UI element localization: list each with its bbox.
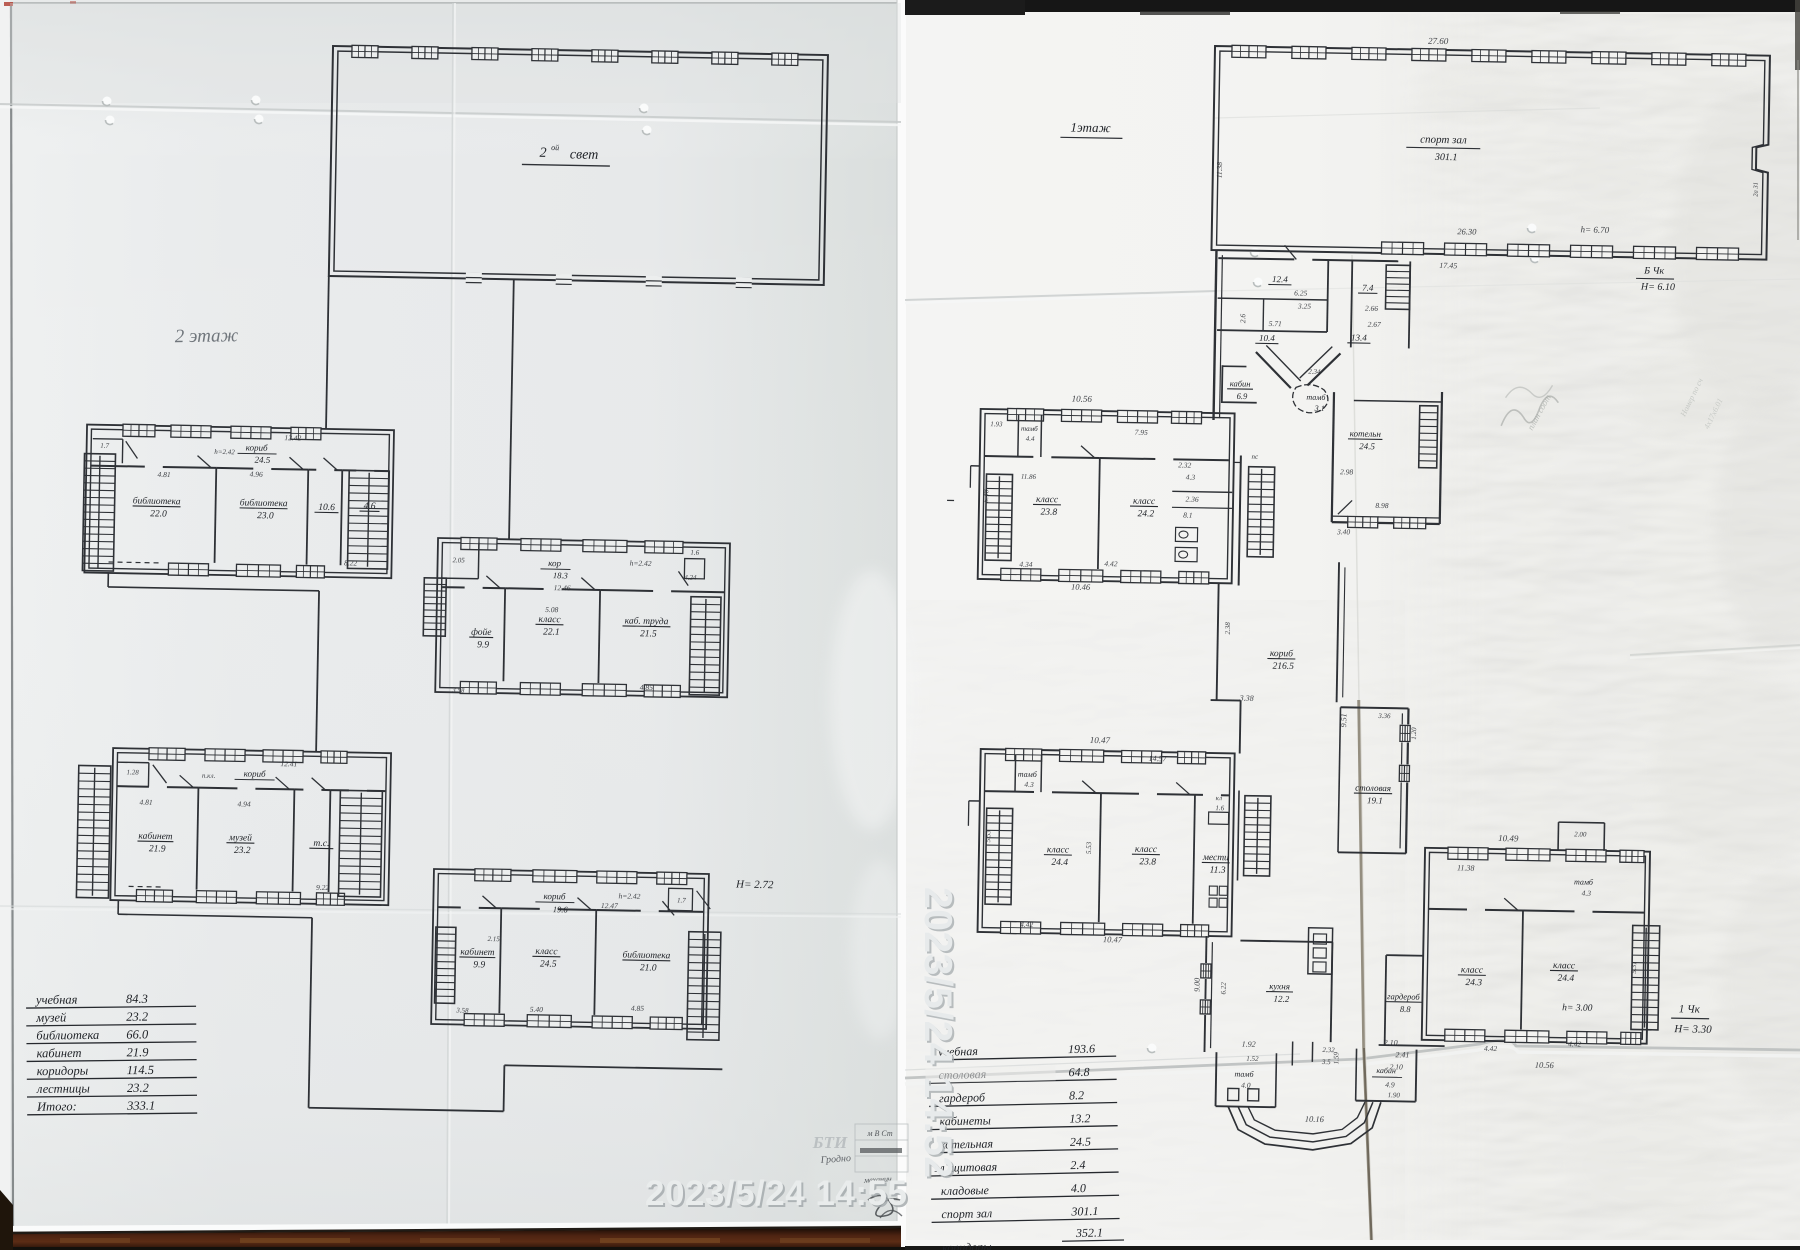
svg-text:музей: музей [228,832,252,843]
svg-text:84.3: 84.3 [126,992,148,1006]
svg-text:4.42: 4.42 [1568,1039,1582,1048]
svg-text:10.56: 10.56 [1072,394,1093,404]
svg-text:9.9: 9.9 [477,640,489,650]
svg-text:2.00: 2.00 [1574,830,1587,838]
svg-text:19.1: 19.1 [1367,795,1383,805]
svg-text:7.4: 7.4 [1362,283,1374,293]
svg-text:спорт зал: спорт зал [941,1206,992,1221]
svg-text:1.90: 1.90 [1388,1091,1401,1099]
svg-text:Н= 6.10: Н= 6.10 [1640,281,1675,293]
svg-text:коридоры: коридоры [942,1240,992,1250]
svg-text:4.6: 4.6 [364,502,376,512]
svg-text:4.9: 4.9 [1385,1080,1395,1089]
svg-text:3.1: 3.1 [1314,404,1325,413]
svg-text:кориб: кориб [246,442,269,452]
svg-text:кабинет: кабинет [36,1046,81,1060]
svg-text:кориб: кориб [543,891,566,901]
svg-text:Н= 3.30: Н= 3.30 [1673,1023,1712,1036]
svg-text:4.85: 4.85 [640,683,654,692]
svg-text:10.47: 10.47 [1090,735,1111,745]
svg-text:2a 31: 2a 31 [1752,182,1759,197]
svg-text:1 Чк: 1 Чк [1679,1003,1701,1015]
svg-text:23.8: 23.8 [1040,508,1057,518]
svg-text:11.38: 11.38 [1457,863,1475,872]
svg-text:кухня: кухня [1269,981,1290,991]
svg-text:h=2.42: h=2.42 [630,559,652,568]
svg-text:2.34: 2.34 [1308,368,1321,376]
svg-text:12.41: 12.41 [280,759,297,768]
svg-text:пс: пс [1251,453,1259,461]
svg-text:23.2: 23.2 [127,1081,149,1095]
svg-text:2.10: 2.10 [1384,1038,1398,1047]
svg-text:класс: класс [1135,845,1158,855]
svg-text:12.42: 12.42 [284,433,301,442]
svg-text:музей: музей [35,1010,67,1024]
svg-text:кабинет: кабинет [138,831,172,843]
svg-text:4.96: 4.96 [250,470,264,479]
svg-text:24.5: 24.5 [540,959,557,969]
svg-text:4.4: 4.4 [1026,435,1035,443]
svg-text:каб. труда: каб. труда [625,615,669,627]
svg-text:24.4: 24.4 [1051,858,1068,868]
svg-text:13.2: 13.2 [1069,1111,1090,1125]
svg-text:10.4: 10.4 [1259,333,1275,343]
svg-text:2.38: 2.38 [1224,622,1232,635]
svg-text:10.46: 10.46 [1071,582,1091,592]
svg-text:спорт зал: спорт зал [1420,134,1467,147]
svg-text:13.4: 13.4 [1351,332,1367,342]
svg-text:4.3: 4.3 [1186,473,1196,482]
svg-text:7.95: 7.95 [1135,428,1149,437]
svg-text:кабин: кабин [1230,378,1251,388]
svg-text:кл: кл [1216,794,1223,802]
svg-text:23.8: 23.8 [1139,857,1156,867]
svg-text:столовая: столовая [1355,783,1391,794]
svg-text:11.38: 11.38 [1215,162,1224,179]
svg-text:коридоры: коридоры [37,1064,89,1079]
svg-text:2023/5/24 14:55: 2023/5/24 14:55 [645,1174,907,1213]
svg-text:11.3: 11.3 [1210,866,1226,876]
svg-text:333.1: 333.1 [126,1098,155,1112]
svg-text:класс: класс [1036,495,1059,505]
svg-text:10.56: 10.56 [1535,1060,1555,1070]
svg-text:5.53: 5.53 [1085,841,1093,854]
svg-text:БТИ: БТИ [812,1133,848,1152]
svg-text:класс: класс [1553,961,1576,971]
svg-text:4.42: 4.42 [1484,1044,1498,1053]
svg-text:кабин: кабин [1376,1066,1396,1075]
svg-text:2.6: 2.6 [1238,314,1247,324]
svg-text:класс: класс [1133,497,1156,507]
svg-text:h= 3.00: h= 3.00 [1562,1003,1593,1014]
svg-text:п.кл.: п.кл. [202,772,216,780]
svg-text:1.7: 1.7 [677,896,686,904]
svg-text:1.7: 1.7 [100,442,109,450]
svg-text:3.40: 3.40 [1336,527,1351,536]
svg-text:4.34: 4.34 [1019,560,1033,569]
svg-text:2.36: 2.36 [1185,495,1199,504]
svg-text:301.1: 301.1 [1070,1204,1098,1219]
svg-text:2.32: 2.32 [1178,460,1192,469]
svg-text:свет: свет [570,147,599,163]
svg-text:4.94: 4.94 [237,799,251,808]
svg-text:12.2: 12.2 [1273,994,1289,1004]
svg-text:библиотека: библиотека [36,1028,99,1043]
svg-text:1.6: 1.6 [1215,804,1224,812]
svg-text:2.67: 2.67 [1368,320,1382,329]
svg-text:10.47: 10.47 [1103,934,1123,944]
svg-text:23.2: 23.2 [234,846,251,856]
svg-text:18.3: 18.3 [553,570,568,580]
svg-text:22.1: 22.1 [543,627,560,637]
svg-text:лестницы: лестницы [36,1081,91,1096]
svg-text:2023/5/24 14:52: 2023/5/24 14:52 [916,887,959,1179]
svg-text:1.20: 1.20 [1410,727,1418,740]
svg-text:h= 6.70: h= 6.70 [1581,224,1610,235]
svg-text:мести: мести [1202,853,1229,863]
svg-text:кладовые: кладовые [941,1183,990,1198]
svg-text:24.4: 24.4 [1557,974,1574,984]
svg-text:кор: кор [548,558,562,568]
svg-text:1.6: 1.6 [690,549,699,557]
svg-text:гардероб: гардероб [1387,991,1420,1002]
svg-text:12.46: 12.46 [554,583,571,592]
svg-text:114.5: 114.5 [127,1063,154,1077]
svg-text:22.0: 22.0 [150,509,167,519]
svg-text:3.58: 3.58 [451,686,465,694]
svg-text:21.9: 21.9 [149,844,166,854]
svg-text:10.16: 10.16 [1305,1114,1325,1124]
svg-text:8.1: 8.1 [1183,511,1193,520]
svg-text:Итого:: Итого: [36,1099,77,1113]
svg-text:т.с.: т.с. [313,839,329,849]
svg-text:2.05: 2.05 [452,556,465,564]
svg-text:24.5: 24.5 [1359,441,1375,451]
svg-text:4.0: 4.0 [1241,1081,1251,1090]
svg-text:1.52: 1.52 [1246,1055,1259,1063]
svg-text:2.66: 2.66 [1365,304,1379,313]
svg-text:6.22: 6.22 [1219,982,1227,995]
svg-text:2.41: 2.41 [1395,1050,1409,1059]
svg-text:3.36: 3.36 [1377,712,1391,720]
svg-text:2.4: 2.4 [1070,1158,1085,1172]
svg-text:h=2.42: h=2.42 [214,448,235,456]
svg-text:Б Чк: Б Чк [1643,266,1664,277]
svg-text:4.3: 4.3 [1582,889,1592,898]
svg-text:2 этаж: 2 этаж [175,325,239,347]
svg-text:24.5: 24.5 [254,455,270,465]
svg-text:класс: класс [538,615,561,625]
svg-text:кориб: кориб [244,768,267,778]
svg-text:ой: ой [551,143,559,152]
svg-text:8.2: 8.2 [1069,1088,1084,1102]
svg-text:5.08: 5.08 [545,605,559,614]
svg-text:класс: класс [1047,845,1070,855]
svg-text:кориб: кориб [1270,648,1295,659]
svg-text:216.5: 216.5 [1272,662,1294,672]
svg-text:тамб: тамб [1574,877,1594,886]
svg-text:Гродно: Гродно [819,1153,851,1166]
svg-text:4.81: 4.81 [140,798,153,807]
svg-text:21.9: 21.9 [126,1045,149,1059]
svg-text:1.92: 1.92 [1242,1040,1256,1049]
svg-text:24.5: 24.5 [1070,1134,1091,1148]
svg-text:5.40: 5.40 [530,1005,544,1014]
svg-text:24.3: 24.3 [1465,978,1482,988]
svg-text:1этаж: 1этаж [1070,119,1110,135]
svg-text:4.42: 4.42 [1104,559,1118,568]
svg-text:10.6: 10.6 [318,503,335,513]
svg-text:3.5: 3.5 [1321,1058,1331,1066]
svg-text:12.47: 12.47 [601,901,618,910]
svg-text:учебная: учебная [34,993,78,1007]
svg-text:тамб: тамб [1235,1069,1255,1078]
svg-text:4.81: 4.81 [158,470,171,479]
svg-text:тамб: тамб [1018,770,1038,779]
svg-text:1.59: 1.59 [1332,1052,1340,1065]
svg-text:тамб: тамб [1306,393,1326,402]
svg-text:9.9: 9.9 [473,960,485,970]
svg-text:21.5: 21.5 [640,629,657,639]
svg-text:кабинет: кабинет [460,946,494,958]
svg-text:21.0: 21.0 [640,963,657,973]
svg-text:23.0: 23.0 [257,511,274,521]
svg-text:4.3: 4.3 [1024,780,1034,789]
svg-text:4.42: 4.42 [1020,920,1034,929]
svg-text:фойе: фойе [471,627,492,638]
svg-text:h=2.42: h=2.42 [618,891,640,900]
svg-text:9.22: 9.22 [316,883,330,892]
svg-text:301.1: 301.1 [1434,152,1458,163]
svg-text:3.38: 3.38 [1239,694,1254,703]
svg-text:6.9: 6.9 [1237,391,1249,401]
svg-text:9.00: 9.00 [1193,978,1202,992]
svg-text:352.1: 352.1 [1075,1225,1103,1240]
svg-text:10.49: 10.49 [1498,833,1519,843]
svg-text:193.6: 193.6 [1068,1042,1095,1057]
svg-text:14.57: 14.57 [1149,754,1168,763]
svg-text:23.2: 23.2 [126,1010,148,1024]
svg-text:8.98: 8.98 [1375,501,1389,510]
svg-text:24.2: 24.2 [1137,509,1154,519]
svg-text:8.22: 8.22 [344,558,358,567]
svg-text:11.86: 11.86 [1021,473,1037,481]
svg-text:27.60: 27.60 [1428,36,1449,46]
svg-text:H= 2.72: H= 2.72 [735,879,774,892]
svg-text:тамб: тамб [1021,425,1038,433]
svg-text:4.85: 4.85 [631,1004,645,1013]
svg-text:17.45: 17.45 [1439,261,1457,270]
svg-text:котельн: котельн [1350,428,1382,439]
svg-text:66.0: 66.0 [126,1027,149,1041]
svg-text:м В Ст: м В Ст [866,1129,892,1138]
svg-text:26.30: 26.30 [1457,226,1477,236]
svg-text:3.58: 3.58 [455,1006,469,1014]
svg-text:5.71: 5.71 [1269,319,1282,328]
svg-text:12.4: 12.4 [1272,274,1288,284]
svg-text:4.24: 4.24 [684,574,697,582]
svg-text:2.98: 2.98 [1340,467,1354,476]
svg-text:класс: класс [535,947,558,957]
svg-text:3.25: 3.25 [1297,301,1312,310]
svg-text:1.28: 1.28 [126,768,139,776]
svg-text:1.93: 1.93 [990,420,1003,428]
svg-text:8.8: 8.8 [1400,1004,1412,1014]
svg-text:класс: класс [1461,965,1484,975]
svg-text:2.15: 2.15 [488,935,501,943]
svg-text:19.6: 19.6 [553,904,569,914]
svg-text:2: 2 [539,146,546,161]
svg-text:4.0: 4.0 [1071,1181,1086,1195]
svg-text:6.25: 6.25 [1294,288,1308,297]
svg-text:64.8: 64.8 [1068,1065,1089,1079]
